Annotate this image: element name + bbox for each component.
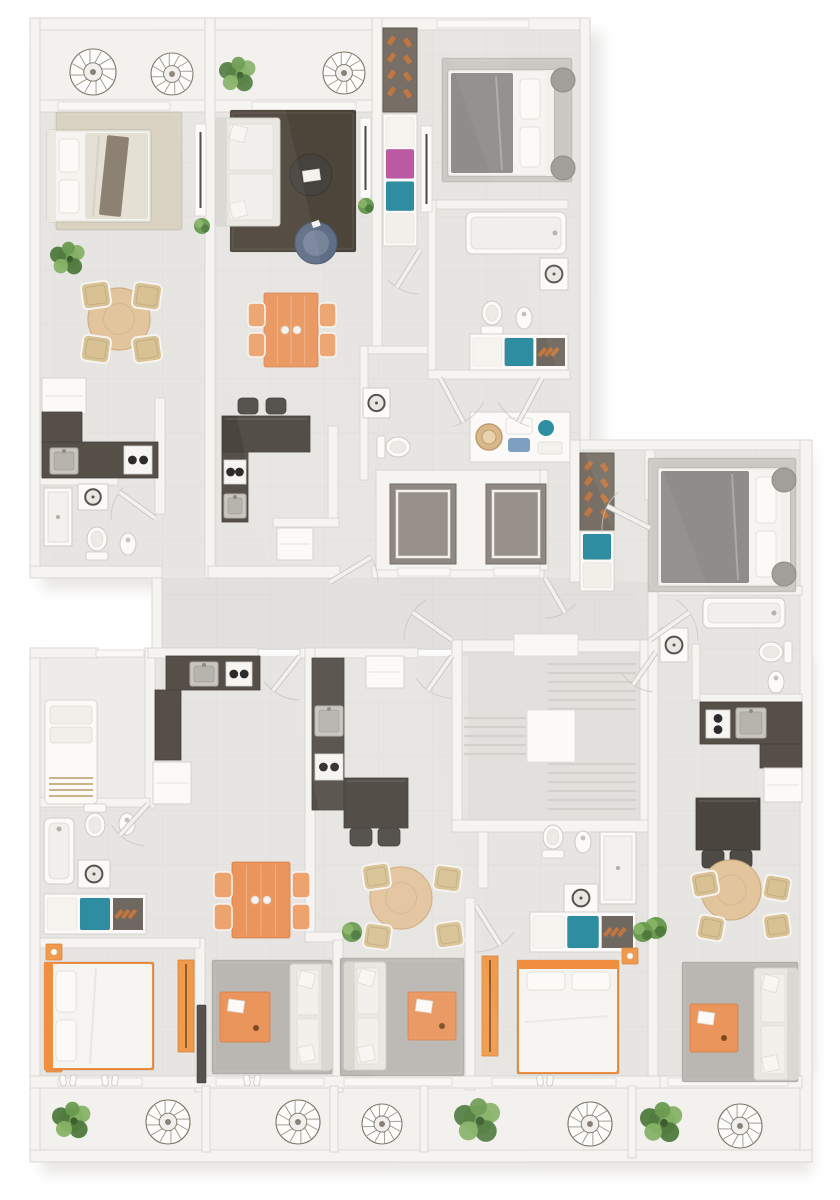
chair-wing-nw	[690, 870, 720, 898]
fridge-wing	[764, 768, 802, 802]
cabinet-unit1	[42, 378, 86, 414]
stove-unit5	[226, 662, 252, 686]
wall-balcony-div-1	[202, 1086, 210, 1152]
bed-unit4	[44, 962, 154, 1070]
tv-console-unit3	[421, 126, 432, 212]
chair-unit1-sw	[80, 334, 111, 364]
chair-unit1-se	[131, 334, 162, 364]
nightstand-unit7	[622, 948, 638, 964]
chair-unit1-nw	[80, 280, 111, 310]
elevator-2	[486, 484, 546, 564]
ottoman-wing-a	[772, 468, 796, 492]
counter-unit5-b	[155, 690, 181, 760]
bathtub-unit4	[44, 818, 74, 884]
ottoman-unit3-b	[551, 156, 575, 180]
bidet-wing	[768, 671, 784, 693]
sink-unit2	[224, 494, 246, 518]
toilet-unit1	[86, 527, 108, 560]
sink-unit5	[190, 662, 218, 686]
toilet-unit3	[481, 301, 503, 334]
toilet-unit4	[84, 804, 106, 837]
sink-wing	[736, 708, 766, 738]
toilet-wing	[759, 641, 792, 663]
wire-chair-balcony-5	[718, 1104, 762, 1148]
bidet-unit1	[120, 533, 136, 555]
chair-unit5-l2	[214, 904, 232, 930]
wall-unit3-bath-l	[428, 200, 436, 378]
wall-unit4-top-a	[30, 648, 98, 658]
wall-unit3-shelf-b	[428, 370, 570, 379]
bed-unit1	[47, 130, 151, 222]
floor-plan	[0, 0, 840, 1200]
wire-chair-top-3	[323, 52, 365, 94]
bed-unit7	[517, 960, 619, 1074]
wire-chair-balcony-2	[276, 1100, 320, 1144]
wardrobe-unit4	[178, 960, 194, 1052]
sofa-wing	[754, 968, 798, 1080]
sill-terrace-door	[96, 650, 144, 657]
nightstand-unit4-a	[46, 944, 62, 960]
wire-chair-balcony-1	[146, 1100, 190, 1144]
sill-elevator-1	[398, 568, 450, 576]
wall-unit7-stub	[478, 832, 488, 888]
daybed-unit4-terrace	[45, 700, 97, 804]
washer-laundry	[363, 388, 390, 418]
wall-unit4-bed-top	[40, 938, 200, 948]
elevator-1	[390, 484, 456, 564]
coffee-table-unit5	[220, 992, 270, 1042]
chair-unit5-r2	[292, 904, 310, 930]
washer-unit1	[78, 484, 108, 510]
wall-unit2-unit3	[372, 18, 382, 352]
stove-unit1	[124, 446, 152, 474]
sill-balcony-door-1	[58, 102, 170, 110]
bidet-unit3	[516, 307, 532, 329]
shelf-unit7	[530, 912, 636, 952]
sill-elevator-2	[494, 568, 540, 576]
washer-unit4	[78, 860, 110, 888]
plant-small-unit7	[633, 922, 653, 942]
wall-wing-bath-div	[692, 644, 700, 700]
sink-unit1	[50, 448, 78, 474]
ottoman-unit3-a	[551, 68, 575, 92]
dining-table-unit5	[232, 862, 290, 938]
stair-landing	[527, 710, 575, 762]
wardrobe-unit3	[383, 114, 417, 246]
wall-laundry-top	[360, 346, 428, 354]
chair-unit5-l1	[214, 872, 232, 898]
counter-unit1-a	[42, 412, 82, 444]
chair-wing-ne	[762, 874, 792, 902]
chair-wing-se	[762, 912, 791, 939]
coffee-table-wing	[690, 1004, 738, 1052]
washer-unit7	[564, 884, 598, 912]
niche-stair-window	[514, 634, 578, 656]
bidet-unit7	[575, 831, 591, 853]
wire-chair-top-1	[70, 49, 116, 95]
sofa-unit5	[290, 964, 332, 1070]
floor-plan-svg	[0, 0, 840, 1200]
shoe-closet-unit3	[383, 28, 417, 112]
wire-chair-balcony-4	[568, 1102, 612, 1146]
wall-stair-left	[452, 640, 462, 832]
wall-left	[30, 18, 40, 578]
wall-hall-left	[152, 578, 162, 650]
toilet-unit7	[542, 825, 564, 858]
shower-unit1	[44, 488, 72, 546]
stove-wing	[706, 710, 730, 738]
chair-unit5-r1	[292, 872, 310, 898]
plant-small-unit2	[358, 198, 374, 214]
toilet-laundry	[377, 436, 410, 458]
counter-wing-2	[760, 744, 802, 768]
chair-wing-sw	[696, 914, 726, 942]
shower-unit7	[600, 832, 636, 904]
wall-balcony-div-2	[330, 1086, 338, 1152]
wardrobe-wing	[580, 531, 614, 591]
wall-wing-west-upper	[570, 440, 580, 582]
stove-unit2	[224, 460, 246, 484]
chair-unit1-ne	[131, 281, 162, 311]
wall-bottom-unit1	[30, 566, 162, 578]
tv-console-unit2	[360, 118, 371, 198]
sill-bottom-2	[216, 1078, 324, 1086]
tv-panel-unit4	[197, 1005, 206, 1083]
ottoman-wing-b	[772, 562, 796, 586]
cabinet-unit5	[153, 762, 191, 804]
island-wing	[696, 798, 760, 850]
wall-balcony-div-4	[628, 1086, 636, 1158]
shelf-unit4	[44, 894, 146, 934]
